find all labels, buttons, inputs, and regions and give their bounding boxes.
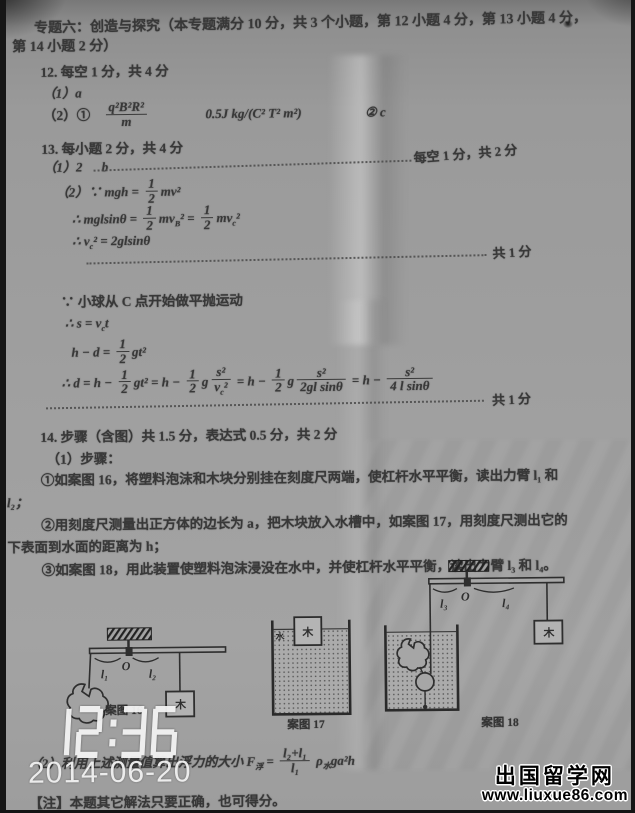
fig16-label-l1: l₁ bbox=[101, 667, 109, 681]
fig18-label-O: O bbox=[461, 589, 470, 603]
photo-edge-right bbox=[631, 0, 635, 810]
fig18-wood-label: 木 bbox=[542, 626, 555, 640]
q13-eq6: h − d = 12gt² bbox=[71, 339, 146, 368]
fig17-wood-label: 木 bbox=[301, 625, 314, 639]
watermark-url-prefix: www.liuxue bbox=[482, 787, 572, 804]
camera-timestamp-time bbox=[42, 706, 178, 763]
watermark-site-name: 出国留学网 bbox=[482, 766, 628, 788]
fig16-label-O: O bbox=[122, 659, 131, 673]
figure-17-caption: 案图 17 bbox=[287, 716, 325, 732]
q12-answer-2: （2）① q²B²R² m 0.5J kg/(C² T² m²) ② c bbox=[43, 99, 386, 131]
q13-answer-1: （1）2 b bbox=[43, 156, 108, 176]
q14-title: 14. 步骤（含图）共 1.5 分，表达式 0.5 分，共 2 分 bbox=[40, 423, 337, 446]
dotted-leader-1 bbox=[94, 160, 412, 172]
q14-step1b: l₂； bbox=[7, 492, 28, 511]
q14-step2b: 下表面到水面的距离为 h； bbox=[7, 535, 167, 557]
q12-fraction-numerator: q²B²R² bbox=[105, 100, 147, 115]
fig18-label-l3: l₃ bbox=[440, 597, 448, 611]
watermark-url: www.liuxue86.com bbox=[482, 788, 628, 804]
q14-step2: ②用刻度尺测量出正方体的边长为 a，把木块放入水槽中，如案图 17，用刻度尺测出… bbox=[41, 508, 568, 534]
answer-sheet-content: 专题六：创造与探究（本专题满分 10 分，共 3 个小题，第 12 小题 4 分… bbox=[0, 0, 635, 813]
photo-artifact-speck bbox=[563, 20, 573, 28]
fig16-brace-left bbox=[95, 658, 121, 662]
fig16-beam bbox=[90, 647, 226, 653]
dotted-leader-3 bbox=[46, 400, 484, 410]
watermark-url-suffix: .com bbox=[590, 787, 628, 804]
fig18-beam bbox=[429, 577, 564, 583]
fig16-label-l2: l₂ bbox=[149, 667, 157, 681]
fig17-water-label: 水 bbox=[275, 630, 285, 641]
fig18-brace-left bbox=[433, 589, 457, 593]
watermark: 出国留学网 www.liuxue86.com bbox=[482, 766, 628, 804]
q13-score-2: 共 1 分 bbox=[492, 388, 532, 409]
figure-18-caption: 案图 18 bbox=[481, 714, 519, 730]
fig16-fulcrum bbox=[126, 647, 133, 656]
q14-note: 【注】本题其它解法只要正确，也可得分。 bbox=[29, 789, 286, 812]
section-header-line1: 专题六：创造与探究（本专题满分 10 分，共 3 个小题，第 12 小题 4 分… bbox=[34, 7, 587, 38]
q12-answer-1: （1）a bbox=[43, 82, 82, 101]
q13-answer-1-num: （1）2 bbox=[43, 159, 82, 174]
q13-eq3: ∴ vc² = 2glsinθ bbox=[72, 233, 150, 251]
q12-fraction: q²B²R² m bbox=[105, 100, 147, 129]
fig16-support-hatch bbox=[107, 628, 151, 640]
q14-step1: ①如案图 16，将塑料泡沫和木块分别挂在刻度尺两端，使杠杆水平平衡，读出力臂 l… bbox=[41, 463, 559, 488]
fig18-label-l4: l₄ bbox=[502, 596, 510, 610]
q13-line4: ∵ 小球从 C 点开始做平抛运动 bbox=[61, 289, 243, 311]
section-header-line2: 第 14 小题 2 分） bbox=[12, 35, 117, 56]
q13-score-1: 共 1 分 bbox=[492, 241, 532, 262]
q13-eq7: ∴ d = h − 12gt² = h − 12gs²vc² = h − 12g… bbox=[62, 365, 436, 401]
fig18-fulcrum bbox=[464, 577, 471, 586]
q13-eq1: （2）∵ mgh = 12mv² bbox=[56, 178, 181, 208]
q12-answer-2b: ② c bbox=[365, 105, 386, 120]
camera-timestamp-date: 2014-06-20 bbox=[28, 755, 192, 790]
q13-eq2: ∴ mglsinθ = 12mvB² = 12mvc² bbox=[72, 205, 240, 235]
fig18-pulley bbox=[416, 673, 434, 691]
fig18-brace-right bbox=[474, 588, 514, 592]
figure-17-tank-diagram: 木 水 bbox=[264, 612, 365, 725]
q13-part1-score: 每空 1 分，共 2 分 bbox=[413, 139, 518, 166]
fig18-string-left bbox=[430, 584, 431, 674]
fig18-water-surface bbox=[386, 632, 456, 633]
q13-title: 13. 每小题 2 分，共 4 分 bbox=[41, 136, 183, 157]
photo-edge-left bbox=[0, 0, 6, 810]
dotted-leader-2 bbox=[86, 254, 486, 264]
fig18-support-hatch bbox=[449, 560, 489, 571]
q13-eq5: ∴ s = vct bbox=[65, 315, 109, 333]
watermark-url-number: 86 bbox=[572, 787, 590, 804]
q12-title: 12. 每空 1 分，共 4 分 bbox=[40, 60, 168, 81]
fig16-brace-right bbox=[133, 658, 159, 662]
q12-unit-answer: 0.5J kg/(C² T² m²) bbox=[205, 105, 301, 121]
q14-sub1: （1）步骤： bbox=[46, 447, 120, 468]
fig16-string-left bbox=[89, 653, 91, 688]
q12-fraction-denominator: m bbox=[106, 114, 148, 128]
q12-answer-2-label: （2）① bbox=[43, 108, 90, 123]
figure-18-lever-tank-diagram: l₃ O l₄ 木 bbox=[378, 547, 575, 717]
q13-answer-1-letter: b bbox=[102, 159, 109, 174]
